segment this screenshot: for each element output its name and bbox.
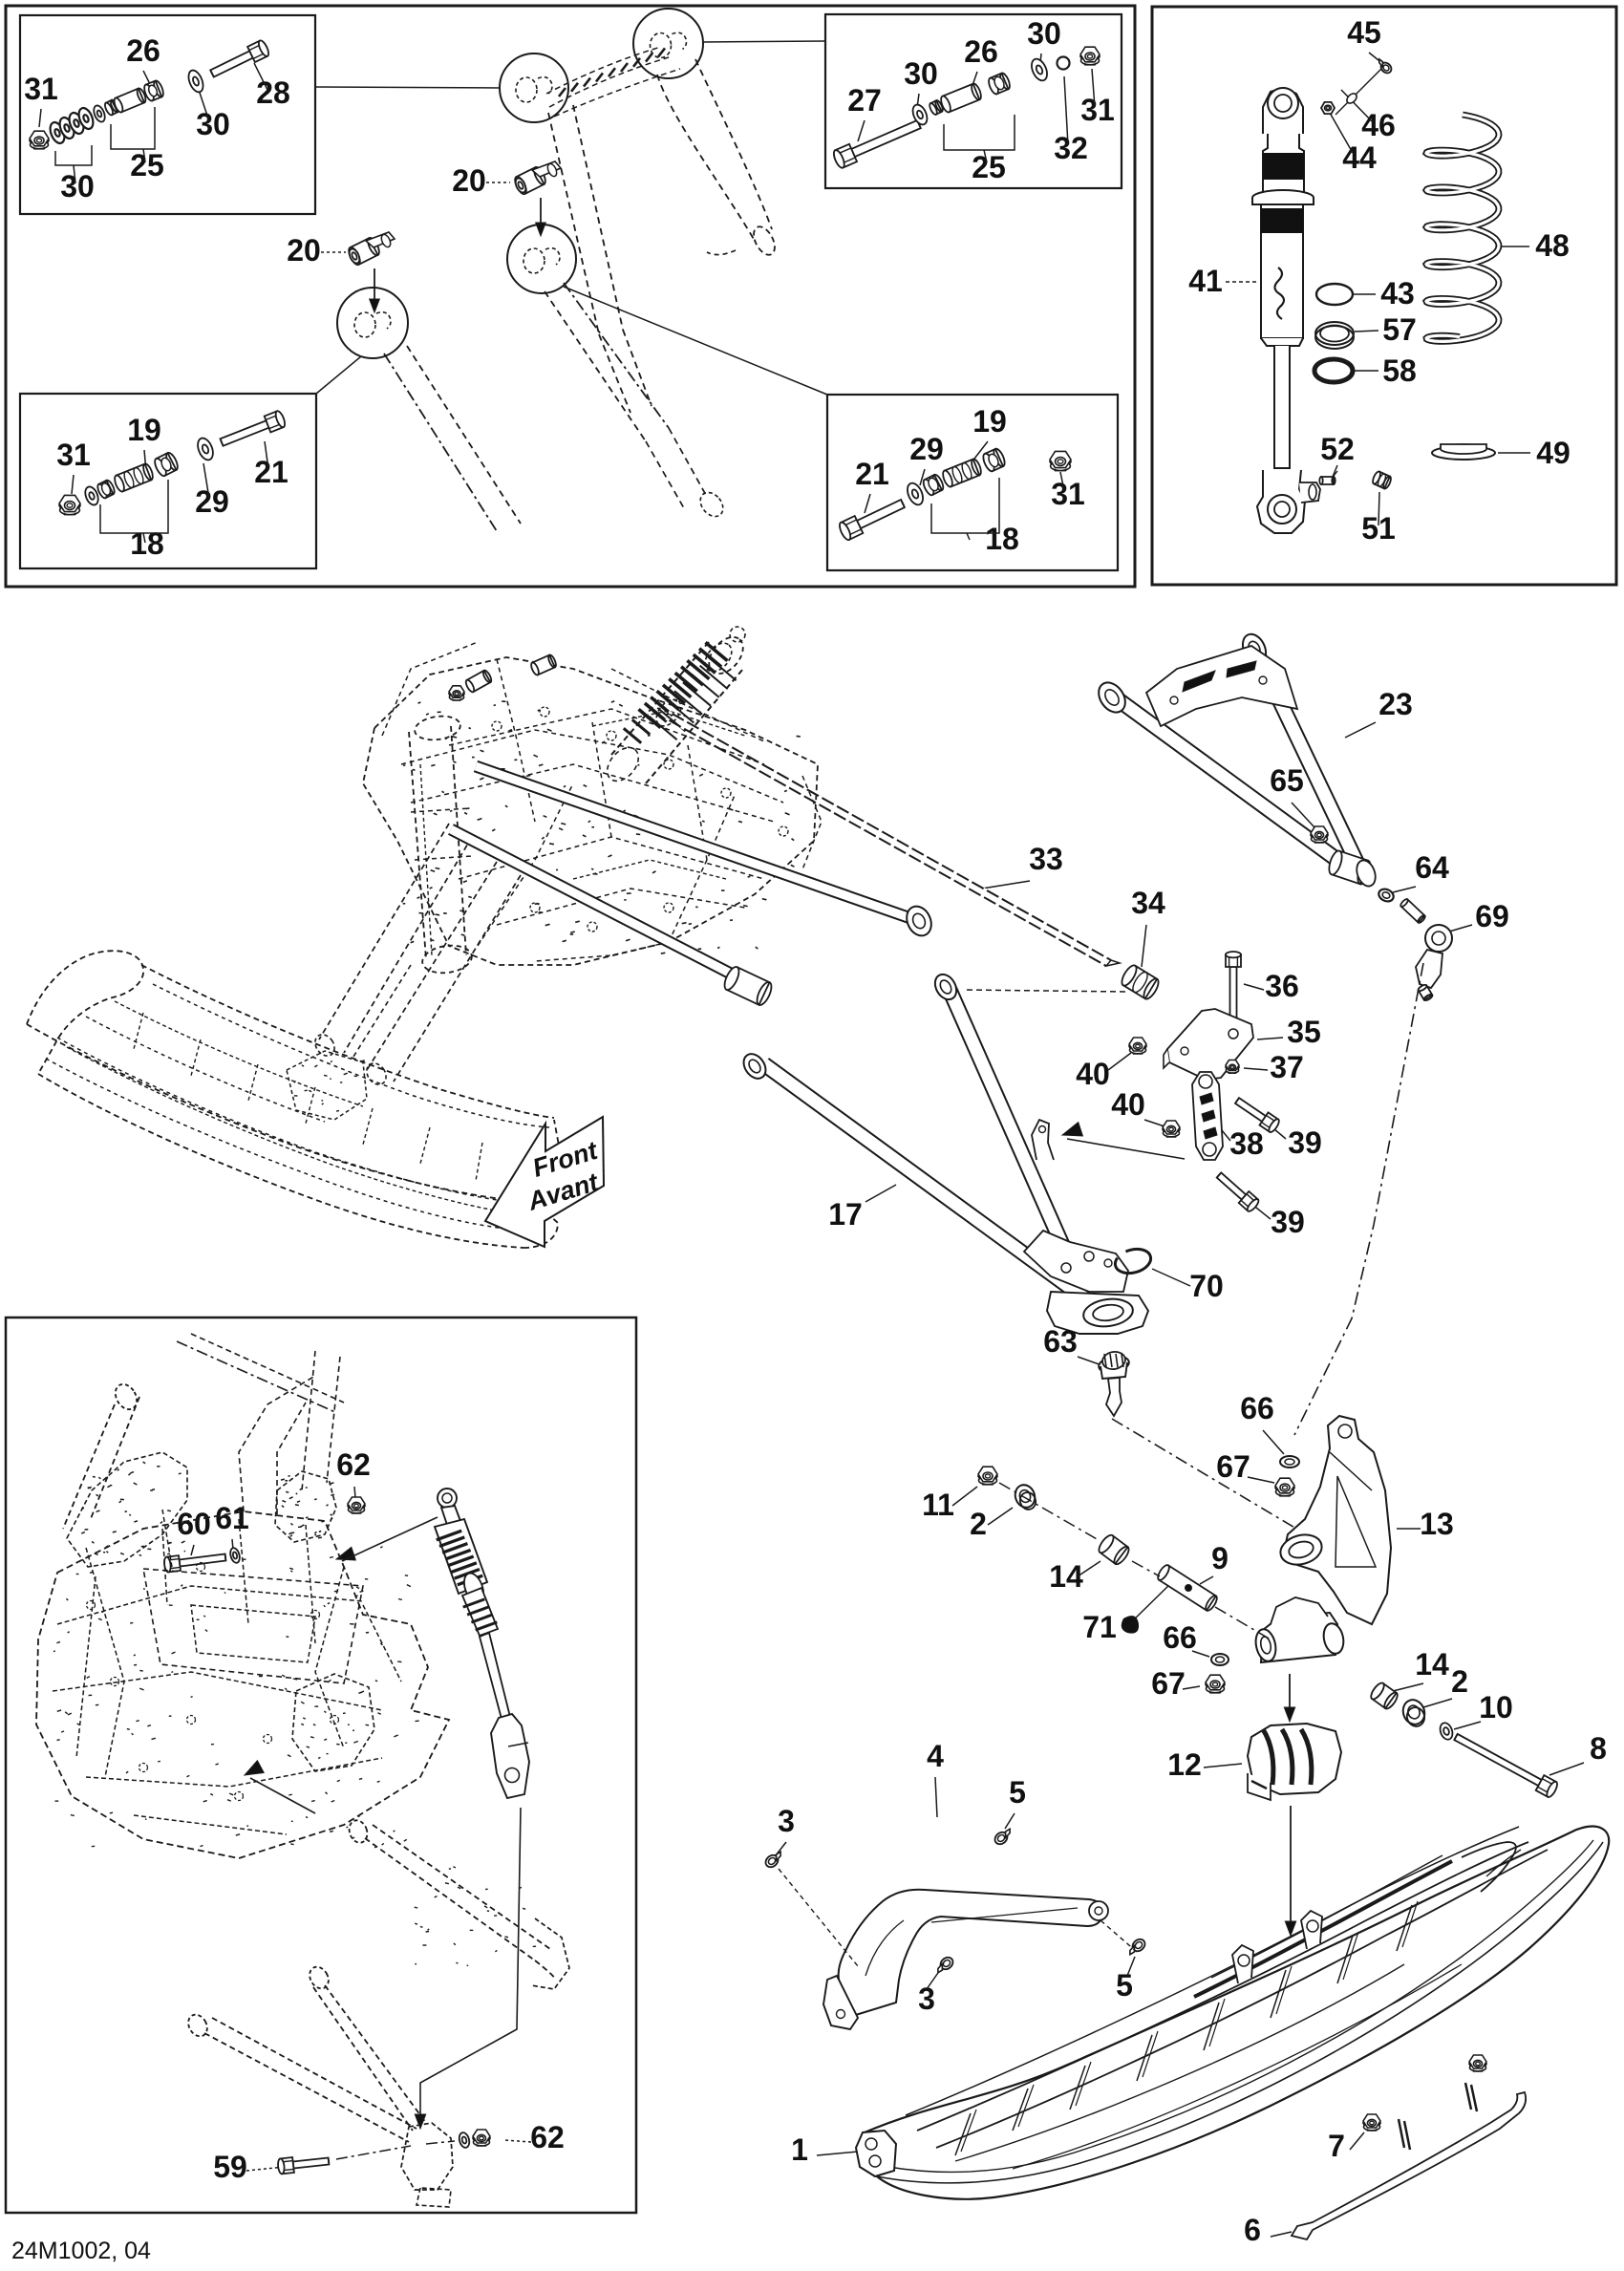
svg-text:12: 12	[1167, 1747, 1202, 1782]
svg-text:62: 62	[530, 2120, 565, 2154]
svg-text:26: 26	[126, 33, 160, 68]
svg-text:44: 44	[1342, 140, 1377, 175]
svg-text:35: 35	[1287, 1015, 1321, 1049]
svg-text:37: 37	[1270, 1050, 1304, 1084]
svg-text:32: 32	[1054, 131, 1088, 165]
svg-text:38: 38	[1229, 1126, 1264, 1161]
svg-text:19: 19	[972, 404, 1007, 439]
svg-text:39: 39	[1271, 1205, 1305, 1239]
svg-text:7: 7	[1328, 2129, 1345, 2163]
svg-text:2: 2	[1451, 1664, 1468, 1699]
svg-text:21: 21	[254, 455, 288, 489]
svg-text:14: 14	[1415, 1647, 1449, 1682]
svg-text:17: 17	[828, 1197, 863, 1232]
svg-text:36: 36	[1265, 969, 1299, 1003]
svg-text:10: 10	[1479, 1690, 1513, 1725]
svg-text:45: 45	[1347, 15, 1381, 50]
svg-text:29: 29	[195, 484, 229, 519]
svg-text:4: 4	[927, 1739, 944, 1773]
svg-text:8: 8	[1590, 1731, 1607, 1766]
svg-text:63: 63	[1043, 1324, 1078, 1359]
svg-text:59: 59	[213, 2150, 247, 2184]
svg-text:39: 39	[1288, 1125, 1322, 1160]
svg-text:11: 11	[922, 1488, 954, 1522]
svg-text:30: 30	[196, 107, 230, 141]
svg-text:43: 43	[1380, 276, 1415, 311]
svg-text:67: 67	[1216, 1449, 1250, 1484]
svg-text:2: 2	[970, 1507, 987, 1541]
svg-text:34: 34	[1131, 886, 1165, 920]
svg-text:40: 40	[1111, 1087, 1145, 1122]
svg-text:27: 27	[847, 83, 882, 118]
svg-text:60: 60	[177, 1507, 211, 1541]
svg-text:67: 67	[1151, 1666, 1186, 1701]
svg-text:70: 70	[1189, 1269, 1224, 1303]
svg-text:41: 41	[1188, 264, 1223, 298]
svg-text:49: 49	[1536, 436, 1571, 470]
svg-text:6: 6	[1244, 2213, 1261, 2247]
svg-text:30: 30	[904, 56, 938, 91]
svg-text:40: 40	[1076, 1057, 1110, 1091]
svg-text:31: 31	[24, 72, 58, 106]
svg-text:66: 66	[1240, 1391, 1274, 1425]
svg-text:31: 31	[56, 438, 91, 472]
svg-text:13: 13	[1420, 1507, 1454, 1541]
svg-text:9: 9	[1211, 1541, 1229, 1575]
svg-text:31: 31	[1080, 93, 1115, 127]
svg-text:18: 18	[130, 526, 164, 561]
svg-text:31: 31	[1051, 477, 1085, 511]
svg-text:71: 71	[1082, 1610, 1117, 1644]
svg-text:25: 25	[972, 150, 1006, 184]
svg-text:30: 30	[60, 169, 95, 204]
svg-text:58: 58	[1382, 354, 1417, 388]
svg-text:69: 69	[1475, 899, 1509, 933]
svg-text:65: 65	[1270, 763, 1304, 798]
svg-text:66: 66	[1163, 1620, 1197, 1655]
svg-text:62: 62	[336, 1447, 371, 1482]
svg-text:30: 30	[1027, 16, 1061, 51]
svg-text:46: 46	[1361, 108, 1396, 142]
svg-text:18: 18	[985, 522, 1019, 556]
svg-text:61: 61	[215, 1501, 249, 1535]
svg-text:52: 52	[1320, 432, 1355, 466]
svg-text:57: 57	[1382, 312, 1417, 347]
svg-text:29: 29	[909, 432, 944, 466]
svg-text:5: 5	[1009, 1775, 1026, 1810]
svg-text:19: 19	[127, 413, 161, 447]
svg-text:64: 64	[1415, 850, 1449, 885]
svg-text:28: 28	[256, 75, 290, 110]
svg-text:1: 1	[791, 2132, 808, 2167]
svg-text:25: 25	[130, 148, 164, 182]
svg-text:20: 20	[287, 233, 321, 268]
svg-text:26: 26	[964, 34, 998, 69]
svg-text:21: 21	[855, 457, 889, 491]
svg-text:5: 5	[1116, 1968, 1133, 2003]
svg-text:20: 20	[452, 163, 486, 198]
svg-text:3: 3	[778, 1804, 795, 1838]
svg-text:3: 3	[918, 1982, 935, 2016]
svg-text:33: 33	[1029, 842, 1063, 876]
svg-text:23: 23	[1378, 687, 1413, 721]
svg-text:24M1002, 04: 24M1002, 04	[11, 2238, 151, 2264]
svg-text:48: 48	[1535, 228, 1570, 263]
